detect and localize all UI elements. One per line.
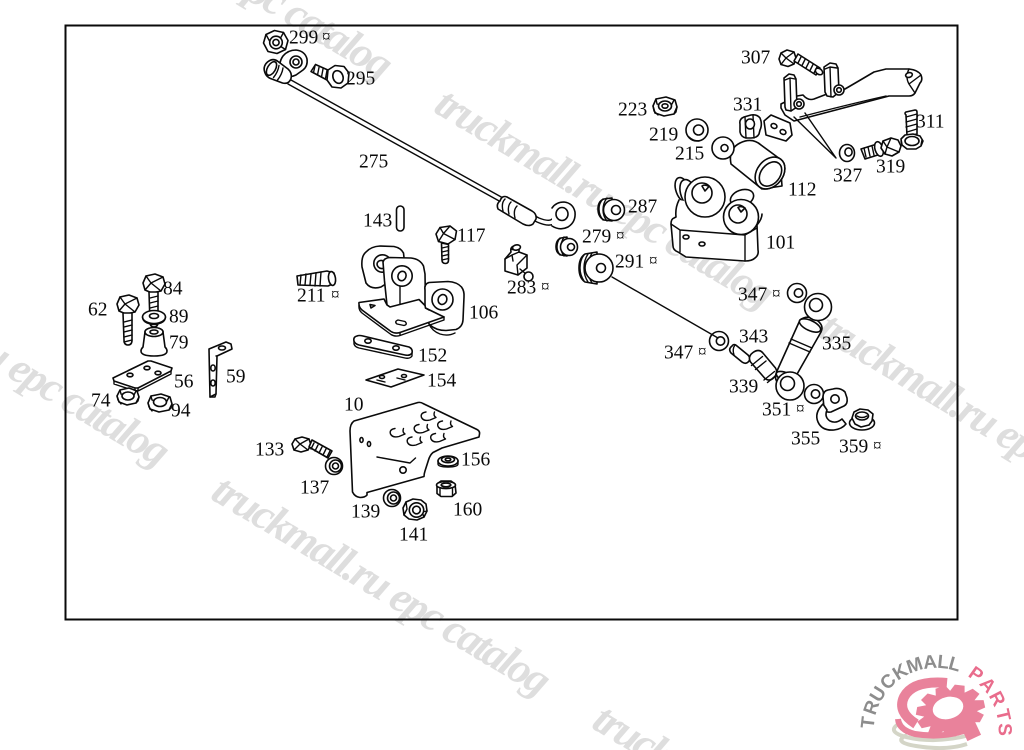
svg-text:347: 347 (738, 285, 768, 306)
svg-text:307: 307 (741, 48, 771, 69)
svg-text:351: 351 (762, 400, 791, 421)
svg-text:141: 141 (399, 525, 428, 546)
svg-text:¤: ¤ (541, 277, 550, 296)
svg-text:112: 112 (788, 180, 817, 201)
svg-text:299: 299 (289, 28, 318, 49)
svg-text:10: 10 (344, 395, 364, 416)
svg-text:79: 79 (169, 333, 189, 354)
svg-text:152: 152 (418, 346, 447, 367)
svg-text:279: 279 (582, 227, 611, 248)
svg-text:T: T (991, 707, 1014, 723)
svg-text:¤: ¤ (796, 399, 805, 418)
svg-text:160: 160 (453, 500, 482, 521)
svg-text:143: 143 (363, 211, 392, 232)
svg-text:¤: ¤ (698, 342, 707, 361)
svg-text:94: 94 (171, 401, 191, 422)
svg-text:283: 283 (507, 278, 536, 299)
svg-text:74: 74 (91, 391, 111, 412)
svg-text:62: 62 (88, 300, 108, 321)
svg-text:truckmall.ru epc catalog: truckmall.ru epc catalog (585, 694, 940, 750)
svg-text:355: 355 (791, 429, 820, 450)
svg-text:311: 311 (916, 112, 945, 133)
svg-text:¤: ¤ (322, 27, 331, 46)
svg-text:211: 211 (297, 286, 326, 307)
svg-text:215: 215 (675, 144, 704, 165)
svg-text:137: 137 (300, 478, 330, 499)
svg-text:339: 339 (729, 377, 758, 398)
svg-text:¤: ¤ (331, 285, 340, 304)
svg-text:139: 139 (351, 502, 380, 523)
svg-text:¤: ¤ (649, 251, 658, 270)
svg-text:84: 84 (163, 279, 183, 300)
svg-text:295: 295 (346, 69, 375, 90)
svg-text:106: 106 (469, 303, 499, 324)
svg-text:347: 347 (664, 343, 694, 364)
svg-text:¤: ¤ (772, 284, 781, 303)
svg-text:101: 101 (766, 233, 795, 254)
svg-text:117: 117 (457, 226, 486, 247)
svg-text:truckmall.ru epc catalog: truckmall.ru epc catalog (204, 465, 559, 705)
svg-text:59: 59 (226, 367, 246, 388)
svg-text:S: S (994, 723, 1015, 736)
svg-text:319: 319 (876, 157, 905, 178)
svg-text:¤: ¤ (873, 436, 882, 455)
svg-text:335: 335 (822, 334, 851, 355)
svg-text:133: 133 (255, 440, 284, 461)
svg-text:156: 156 (461, 450, 491, 471)
svg-text:327: 327 (833, 166, 863, 187)
svg-text:219: 219 (649, 125, 678, 146)
svg-text:89: 89 (169, 307, 189, 328)
svg-text:truckmall.ru epc catalog: truckmall.ru epc catalog (427, 78, 782, 318)
svg-text:343: 343 (739, 327, 768, 348)
svg-text:287: 287 (628, 197, 658, 218)
svg-text:275: 275 (359, 152, 388, 173)
svg-text:154: 154 (427, 371, 457, 392)
svg-text:291: 291 (615, 252, 644, 273)
svg-text:56: 56 (174, 372, 194, 393)
svg-text:223: 223 (618, 100, 647, 121)
svg-text:359: 359 (839, 437, 868, 458)
svg-text:331: 331 (733, 95, 762, 116)
svg-text:¤: ¤ (616, 226, 625, 245)
